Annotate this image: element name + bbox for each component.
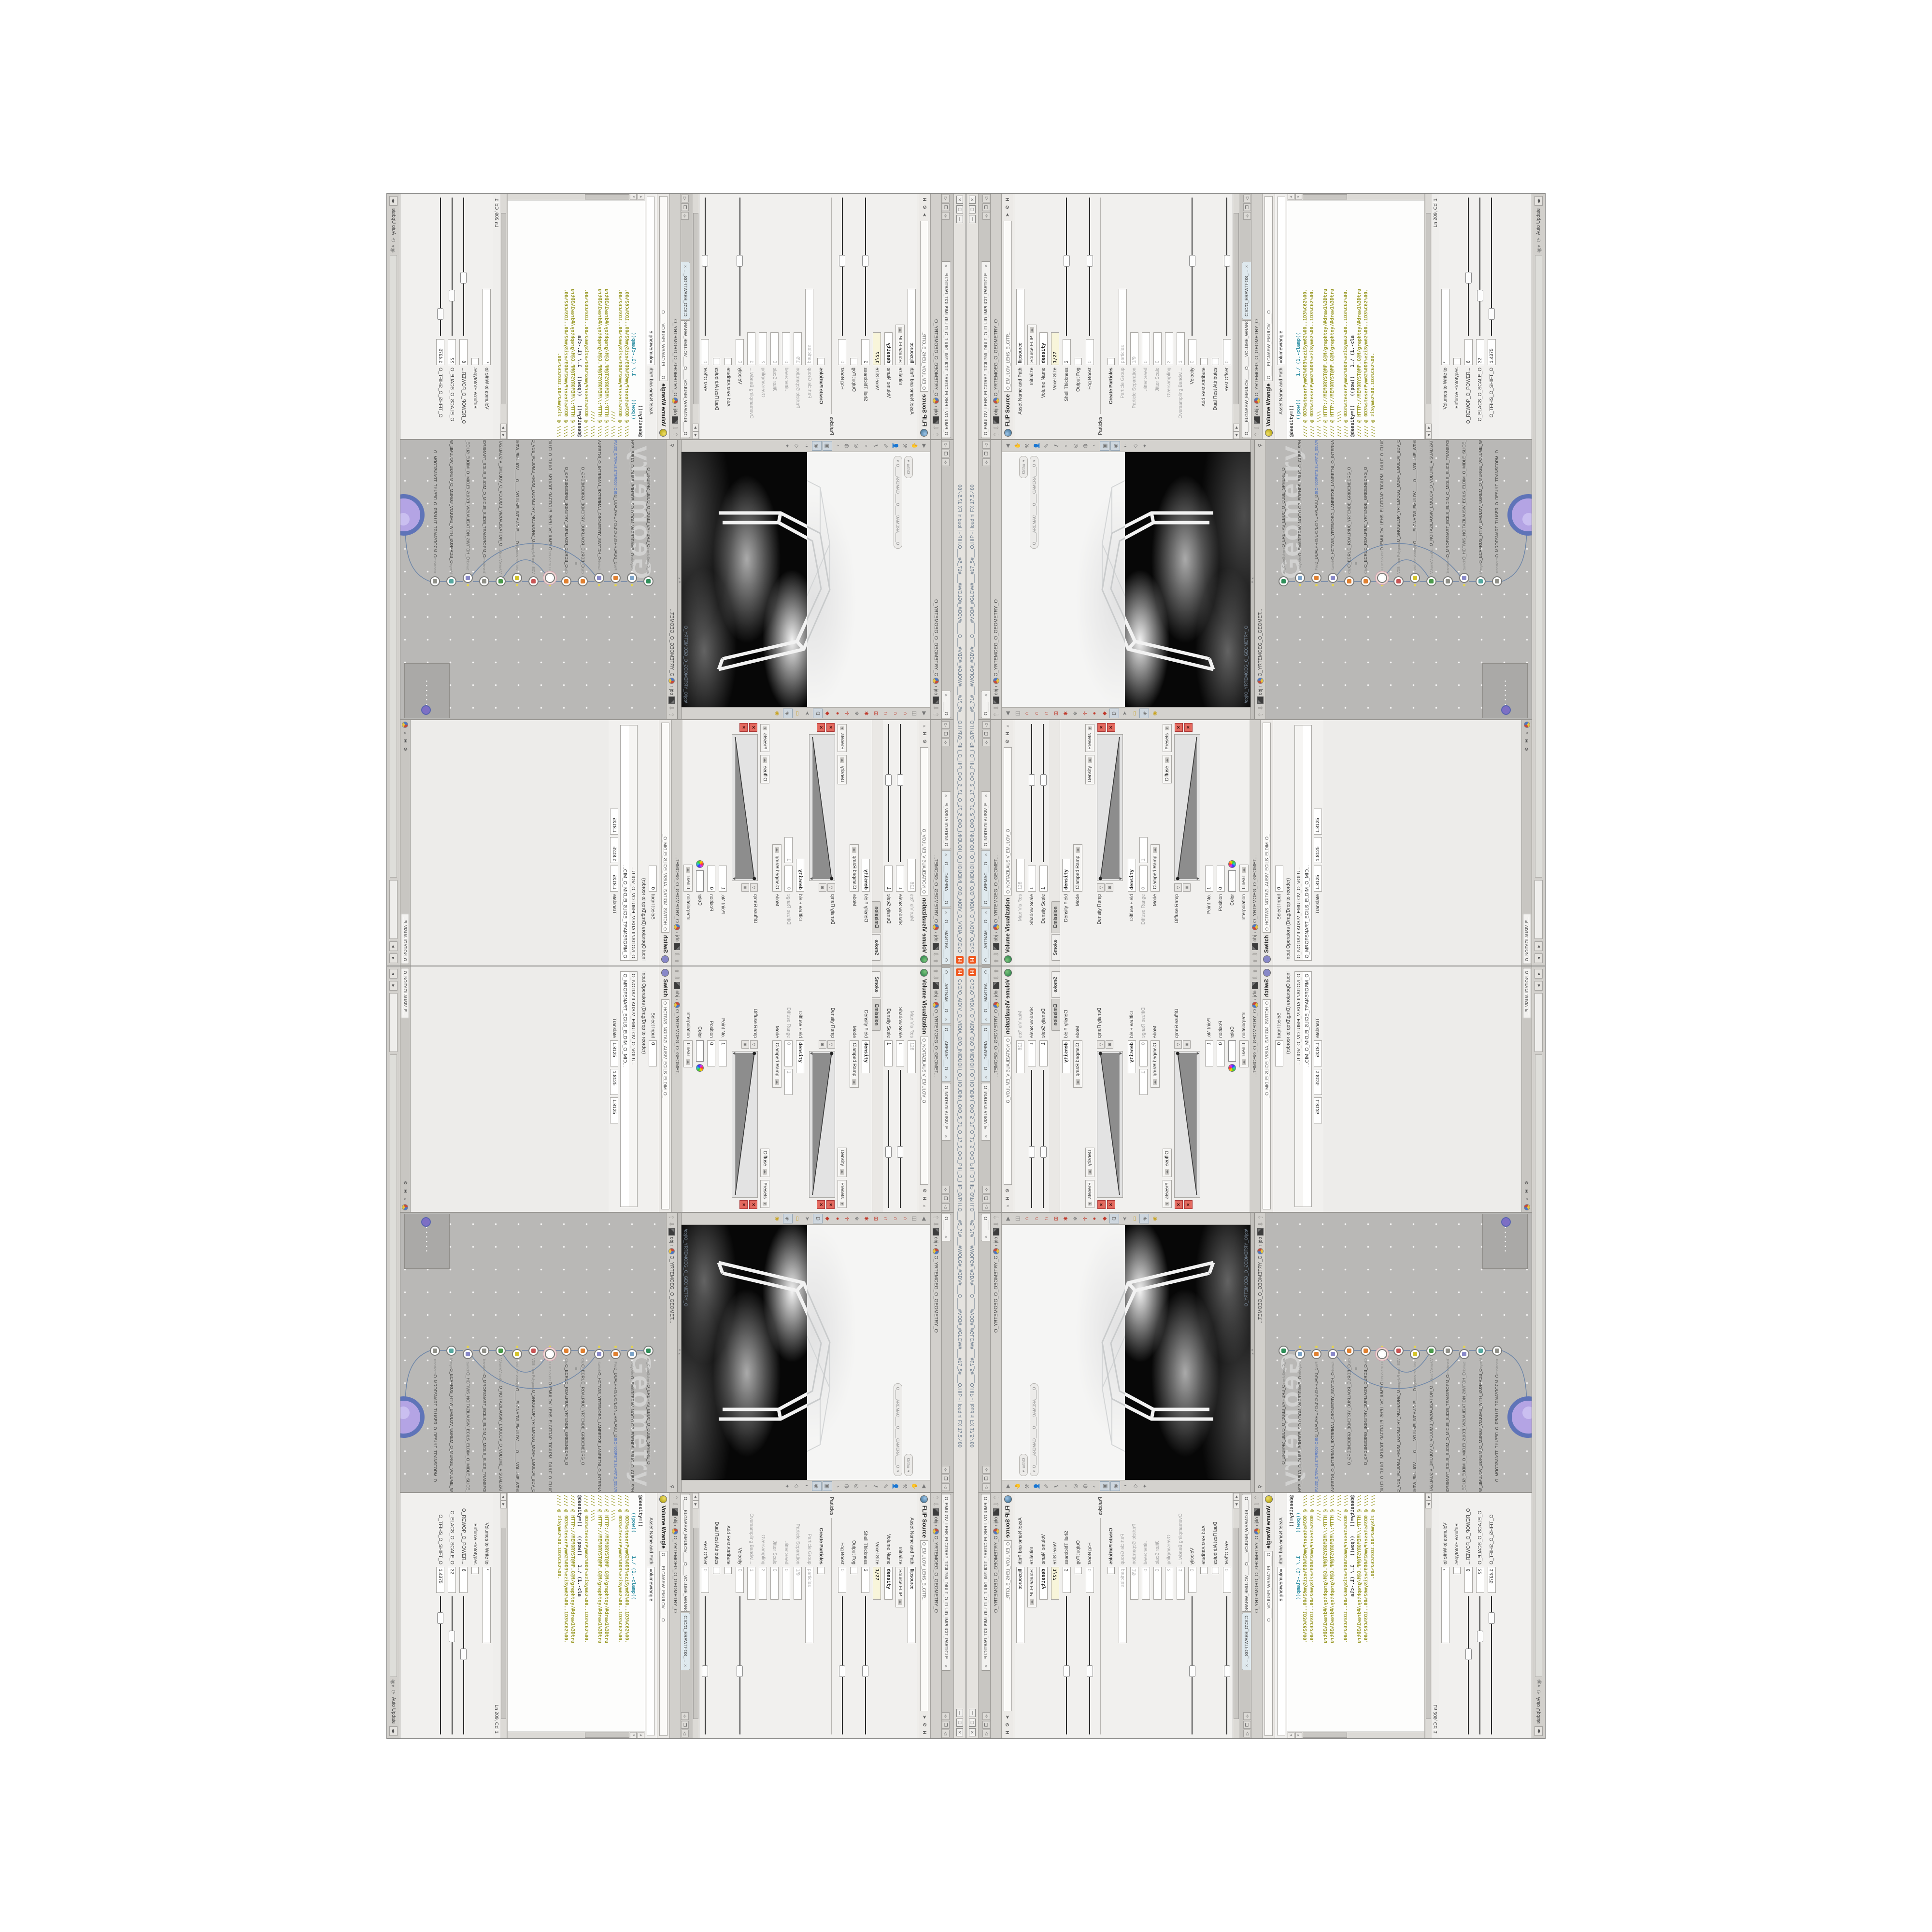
network-node[interactable]: SwitchO_HCTIWS_YRTEMOEG_LANRETXE_LANRETN…	[594, 1346, 604, 1492]
slider-thumb[interactable]	[839, 255, 845, 267]
node-ring[interactable]	[1295, 1349, 1305, 1359]
list-item[interactable]: O_MROFSNART_ECILS_ELDIM_O_MID...	[621, 725, 629, 960]
node-ring[interactable]	[1459, 573, 1469, 583]
ramp-delete-icon[interactable]: ✕	[1175, 1200, 1183, 1209]
snap-grid-icon[interactable]: ∩	[1023, 1214, 1031, 1223]
param-dropdown[interactable]: Clamped Ramp◂▸	[773, 844, 782, 892]
magnifier-icon[interactable]: ⌕	[1005, 723, 1011, 729]
node-ring[interactable]	[643, 1346, 653, 1356]
network-node[interactable]: PolyWireO_EMARFERIW_NOGYLOP_EREHPS_EBUC_…	[627, 1346, 637, 1492]
breadcrumb-context[interactable]: obj	[994, 1517, 999, 1523]
param-field[interactable]: 0	[1223, 339, 1231, 365]
slider-thumb[interactable]	[702, 1665, 708, 1677]
pane-down-arrow-icon[interactable]: ⇩	[674, 952, 681, 957]
character-icon[interactable]: 👤	[891, 441, 900, 450]
folder-tab[interactable]: Emission	[872, 901, 881, 933]
scene-viewport[interactable]: ◀◫∩∩∩⊞✱❄✛●◆D➤▭◈◉	[682, 1213, 930, 1492]
node-ring[interactable]	[1443, 576, 1453, 586]
effects-icon[interactable]: ✦	[783, 441, 792, 450]
network-editor[interactable]: Geometry • • • • • • an_CubeSphereO_EREH…	[400, 1213, 666, 1492]
node-name-label[interactable]: O_ECRUD_ROALPIUC_YRTENDE_GRIDENEDRG_O	[581, 467, 585, 568]
pane-tab[interactable]: O_NOITAZILAUSIV_E...✕	[942, 791, 951, 849]
node-name-label[interactable]: O_ECRUD_ROALPIUC_YRTENDE_GRIDENEDRG_O	[1347, 467, 1351, 568]
camera-lock-icon[interactable]: ◍	[1080, 1482, 1089, 1491]
param-field[interactable]: 1	[1177, 332, 1185, 365]
minimize-button[interactable]: —	[956, 215, 963, 223]
pane-down-arrow-icon[interactable]: ⇩	[669, 705, 675, 710]
pane-up-arrow-icon[interactable]: ⇧	[993, 958, 999, 964]
param-checkbox[interactable]	[1108, 1567, 1115, 1574]
node-ring[interactable]	[1443, 1346, 1453, 1356]
breadcrumb-node[interactable]: O_YRTEMOEG_O_GEOMETRY_O	[1254, 1536, 1260, 1613]
pane-up-arrow-icon[interactable]: ⇧	[1254, 432, 1260, 437]
node-name-label[interactable]: O_ECAFRUS_HTIW_EMULOV_EGREM_O_MERGE_VOLU…	[449, 1368, 454, 1492]
folder-tab[interactable]: Emission	[872, 999, 881, 1031]
param-checkbox[interactable]	[851, 358, 858, 365]
help-h-icon[interactable]: H	[1005, 730, 1011, 737]
node-ring[interactable]	[1377, 573, 1387, 583]
node-ring[interactable]	[1344, 576, 1354, 586]
pane-down-arrow-icon[interactable]: ⇩	[933, 1222, 939, 1227]
node-name-field[interactable]: O____ELGNARW_EMULOV____O	[1264, 1551, 1273, 1736]
param-slider[interactable]	[437, 1595, 444, 1735]
param-field[interactable]: 1.8125	[611, 837, 619, 863]
flip-source-tab[interactable]: O_EMULOV_LEHS_ELCITRAP_TICILPMI_DIULF_O_…	[942, 1494, 951, 1671]
code-hscrollbar[interactable]: ◀ ▶	[1425, 1493, 1432, 1738]
pane-up-arrow-icon[interactable]: ⇧	[1252, 968, 1258, 974]
snap-multi-icon[interactable]: ⊞	[1051, 709, 1060, 718]
node-ring[interactable]	[578, 1346, 588, 1356]
scroll-right-icon[interactable]: ▶	[500, 424, 507, 431]
network-editor[interactable]: Geometry • • • • • • an_CubeSphereO_EREH…	[1266, 1213, 1532, 1492]
network-node[interactable]: an_CubeSphereO_EREHPS_EBUC_O_CUBE_SPHERE…	[1279, 1346, 1289, 1464]
node-ring[interactable]	[1295, 573, 1305, 583]
list-item[interactable]: O_NOITAZILAUSIV_EMULOV_O_VOLU...	[629, 972, 637, 1207]
breadcrumb-context[interactable]: obj	[934, 1237, 939, 1243]
param-field[interactable]: 0	[771, 1567, 779, 1600]
node-name-label[interactable]: O_EMARFERIW_NOGYLOP_EREHPS_EBUC_O_CUBE_S…	[630, 440, 635, 556]
breadcrumb-context[interactable]: obj	[669, 689, 675, 695]
network-box-node-dot[interactable]	[421, 1217, 431, 1227]
ramp-flip-icon[interactable]: ▽	[1174, 1040, 1182, 1049]
select-lasso-icon[interactable]: ◉	[1150, 709, 1159, 718]
ramp-delete-icon[interactable]: ✕	[1175, 723, 1183, 732]
slider-thumb[interactable]	[862, 1665, 868, 1677]
code-line[interactable]: @density=(( ((pow(( 1./ (1.-cla	[1350, 202, 1356, 437]
param-field[interactable]: 1.8125	[1314, 1069, 1322, 1095]
node-ring[interactable]	[1393, 1346, 1404, 1356]
scroll-down-icon[interactable]: ▼	[1295, 194, 1302, 200]
list-item[interactable]: O_MROFSNART_ECILS_ELDIM_O_MID...	[1303, 725, 1311, 960]
param-checkbox[interactable]	[1453, 1567, 1461, 1574]
nav-left-icon[interactable]: ◀	[1534, 953, 1543, 963]
presets-dropdown[interactable]: Presets▾	[1085, 1180, 1094, 1208]
param-field[interactable]: 3	[862, 339, 870, 365]
pane-tab[interactable]: O____ELGNARW_EMULOV____O____VOLUME_WRANG…	[681, 320, 690, 438]
stepper-icon[interactable]: ◂▸	[1242, 867, 1246, 873]
stepper-icon[interactable]: ◂▸	[1030, 327, 1034, 333]
vex-editor[interactable]: @density=(( ((pow(( 1./ (1.-clamp((//// …	[507, 1493, 645, 1738]
ramp-curve-widget[interactable]	[1097, 734, 1123, 881]
minimize-button[interactable]: —	[969, 1709, 976, 1717]
pane-collapse-icon[interactable]: ◁	[942, 195, 950, 202]
param-field[interactable]: 1	[1139, 1069, 1148, 1095]
ramp-curve-widget[interactable]	[732, 1051, 758, 1198]
pane-up-arrow-icon[interactable]: ⇧	[674, 958, 681, 964]
stepper-icon[interactable]: ◂▸	[1076, 1079, 1080, 1085]
pane-split-icon[interactable]: ⊹	[942, 458, 950, 466]
ramp-flip-icon[interactable]: ▽	[827, 1040, 835, 1049]
node-name-label[interactable]: O_ECRUD_ROALPIUC_YRTENDE_GRIDENEDRG_O	[564, 1364, 569, 1465]
slider-thumb[interactable]	[1087, 255, 1093, 267]
node-flag-icon[interactable]	[1299, 1346, 1301, 1348]
key-icon[interactable]: ⚷	[1051, 1482, 1060, 1491]
pane-tab[interactable]: O____ARTNAM___O...✕	[942, 908, 951, 965]
stepper-icon[interactable]: ◂▸	[1165, 1169, 1169, 1175]
param-field[interactable]: 32	[1476, 1567, 1484, 1593]
network-node[interactable]: SwitchO_HCTIWS_NOITAZILAUSIV_ECILS_ELDIM…	[463, 1346, 473, 1492]
shaded-mode-icon[interactable]: ▣	[1100, 1481, 1109, 1491]
tab-close-icon[interactable]: ✕	[984, 694, 988, 697]
scroll-left-icon[interactable]: ◀	[1233, 431, 1239, 439]
node-ring[interactable]	[463, 1349, 473, 1359]
breadcrumb-node[interactable]: O_YRTEMOEG_O_GEOMET...	[994, 855, 999, 923]
nav-left-icon[interactable]: ◀	[1534, 969, 1543, 979]
pane-maximize-icon[interactable]: ❐	[681, 1721, 689, 1729]
pane-divider-handle[interactable]: ▼▲	[1250, 1213, 1255, 1492]
param-field[interactable]: 1	[896, 1040, 905, 1066]
node-name-label[interactable]: O_SNOGILOP_YRTEMOEG_MORF_EMULOV_BDV_O_VD…	[1396, 1390, 1401, 1492]
network-box-node-dot[interactable]	[1501, 705, 1511, 715]
pane-maximize-icon[interactable]: ❐	[942, 1194, 950, 1202]
pin-icon[interactable]: ⚲	[1257, 442, 1264, 449]
camera-icon[interactable]: ◎	[1071, 1482, 1080, 1491]
tab-close-icon[interactable]: ✕	[984, 794, 988, 797]
node-name-field[interactable]: O_HCTIWS_NOITAZILAUSIV_ECILS_ELDIM_O_	[661, 723, 669, 933]
param-slider[interactable]	[1028, 723, 1036, 863]
update-mode-stepper[interactable]: ◀▶	[1534, 1726, 1543, 1736]
breadcrumb-node[interactable]: O_YRTEMOEG_O_GEOMET...	[675, 1009, 680, 1077]
node-ring[interactable]	[1377, 1349, 1387, 1359]
param-field[interactable]: 2	[759, 1567, 767, 1600]
node-ring[interactable]	[1459, 1349, 1469, 1359]
nav-collapse-icon[interactable]: ◀	[1003, 1214, 1012, 1223]
node-name-field[interactable]: O_EMULOV_LEHS_ELCITR...	[920, 1540, 928, 1711]
stepper-icon[interactable]: ◂▸	[686, 1059, 691, 1065]
param-dropdown[interactable]: Clamped Ramp◂▸	[1151, 1040, 1160, 1088]
visibility-icon[interactable]: ◉	[812, 441, 822, 451]
ramp-delete-icon[interactable]: ✕	[749, 723, 757, 732]
construction-plane-icon[interactable]: ❄	[852, 1214, 861, 1223]
move-tool-icon[interactable]: ✛	[843, 709, 852, 718]
snap-point-icon[interactable]: ∩	[891, 709, 900, 718]
scroll-thumb[interactable]	[693, 213, 698, 404]
node-name-label[interactable]: O_HCTIWS_YRTEMOEG_LANRETXE_LANRETNI_O_IN…	[1330, 440, 1335, 560]
breadcrumb-node[interactable]: O_YRTEMOEG_O_GEOMET...	[1252, 855, 1258, 923]
tab-close-icon[interactable]: ✕	[944, 1236, 949, 1239]
gear-icon[interactable]: ⚙	[1005, 1187, 1011, 1194]
scale-tool-icon[interactable]: ◆	[1100, 1214, 1108, 1223]
ramp-add-icon[interactable]: ⊞	[741, 1040, 749, 1049]
param-field[interactable]: 1.8125	[611, 809, 619, 835]
code-line[interactable]: //// @ ziSym62%00.1D3%C62%00.	[1370, 1495, 1377, 1730]
folder-tab[interactable]: Smoke	[872, 971, 881, 998]
tab-close-icon[interactable]: ✕	[944, 911, 949, 914]
network-node[interactable]: ClipO_ECRUD_ROALPIUC_YRTENDE_GRIDENEDRG_…	[578, 1346, 588, 1465]
gear-icon[interactable]: ⚙	[921, 738, 928, 745]
param-slider[interactable]	[701, 1595, 709, 1735]
shaded-mode-icon[interactable]: ▣	[1100, 441, 1109, 451]
network-node[interactable]: VDB from PolygonsO_SNOGILOP_YRTEMOEG_MOR…	[1393, 1346, 1404, 1492]
node-flag-icon[interactable]	[598, 1346, 600, 1348]
scroll-thumb[interactable]	[1426, 1528, 1431, 1719]
param-checkbox[interactable]	[1212, 358, 1219, 365]
node-name-field[interactable]: O_NOITAZILAUSIV_EMULOV_O	[920, 747, 928, 895]
node-ring[interactable]	[496, 576, 506, 586]
param-slider[interactable]	[460, 197, 468, 337]
view-pin-icon[interactable]: ◔	[1090, 1482, 1099, 1491]
network-node[interactable]: VolumeVisualiz...O_NOITAZILAUSIV_EMULOV_…	[1426, 440, 1436, 586]
pointer-icon[interactable]: ➤	[1005, 212, 1011, 218]
gear-icon[interactable]: ⚙	[921, 204, 928, 211]
view-mode-pill[interactable]: Ortho▾	[904, 456, 913, 478]
pane-collapse-icon[interactable]: ◁	[982, 1483, 990, 1491]
snap-edge-icon[interactable]: ∩	[881, 709, 890, 718]
param-field[interactable]: 128	[1016, 1040, 1024, 1073]
code-vscrollbar[interactable]: ▲ ▼	[508, 194, 645, 200]
slider-thumb[interactable]	[897, 775, 903, 786]
network-node[interactable]: FLIP SourceO_EMULOV_LEHS_ELCITRAP_TICILP…	[545, 1346, 555, 1492]
param-field[interactable]: particles	[806, 1567, 814, 1643]
pane-down-arrow-icon[interactable]: ⇩	[1252, 975, 1258, 980]
select-lasso-icon[interactable]: ◉	[773, 709, 782, 718]
param-checkbox[interactable]	[1108, 358, 1115, 365]
code-line[interactable]: @density=((	[1289, 1495, 1295, 1730]
param-field[interactable]: 0	[708, 866, 716, 892]
param-slider[interactable]	[1188, 1595, 1196, 1735]
code-line[interactable]: //// \\\\	[1316, 202, 1322, 437]
construction-plane-icon[interactable]: ❄	[1071, 709, 1080, 718]
camera-pill[interactable]: O____AREMAC____O____CAMERA____O▾	[894, 456, 902, 549]
param-field[interactable]: density	[1128, 1040, 1136, 1073]
move-tool-icon[interactable]: ✛	[1080, 1214, 1089, 1223]
pin-icon[interactable]: ⚲	[1257, 1483, 1264, 1490]
node-name-label[interactable]: O_ECRUD_ROALPIUC_YRTENDE_GRIDENEDRG_O	[581, 1364, 585, 1465]
slider-thumb[interactable]	[460, 272, 467, 284]
param-field[interactable]: 1	[896, 866, 905, 892]
network-node[interactable]: Volume WrangleO____ELGNARW_EMULOV____O__…	[512, 440, 522, 586]
network-editor[interactable]: Geometry • • • • • • an_CubeSphereO_EREH…	[1266, 440, 1532, 719]
nav-collapse-icon[interactable]: ◀	[920, 709, 929, 718]
network-node[interactable]: FLIP SourceO_EMULOV_LEHS_ELCITRAP_TICILP…	[545, 440, 555, 586]
pen-icon[interactable]: ✎	[881, 1482, 890, 1491]
node-ring[interactable]	[643, 576, 653, 586]
pane-tab[interactable]: O____ELGNARW_EMULOV____O____VOLUME_WRANG…	[681, 1494, 690, 1612]
network-node[interactable]: FLIP SourceO_EMULOV_LEHS_ELCITRAP_TICILP…	[1377, 440, 1387, 586]
node-ring[interactable]	[1311, 1349, 1321, 1359]
pen-icon[interactable]: ✎	[1042, 441, 1051, 450]
node-name-label[interactable]: O____ELGNARW_EMULOV____O____VOLUME_WRANG…	[515, 440, 520, 544]
select-cursor-icon[interactable]: ➤	[1120, 1214, 1129, 1223]
network-node[interactable]: VDB from PolygonsO_SNOGILOP_YRTEMOEG_MOR…	[1393, 440, 1404, 586]
node-flag-icon[interactable]	[467, 1346, 469, 1348]
breadcrumb-context[interactable]: obj	[994, 935, 999, 941]
code-line[interactable]: @density=((	[637, 1495, 643, 1730]
param-slider[interactable]	[896, 1069, 904, 1209]
node-ring[interactable]	[430, 1346, 440, 1356]
node-flag-icon[interactable]	[614, 1346, 617, 1348]
scroll-thumb[interactable]	[501, 1528, 506, 1719]
param-field[interactable]: 0	[1275, 866, 1283, 892]
pane-up-arrow-icon[interactable]: ⇧	[993, 432, 999, 437]
vex-editor[interactable]: @density=(( ((pow(( 1./ (1.-clamp((//// …	[1287, 194, 1425, 439]
breadcrumb-node[interactable]: O_YRTEMOEG_O_GEOMETRY_O	[994, 1256, 999, 1333]
pane-down-arrow-icon[interactable]: ⇩	[993, 705, 999, 710]
param-field[interactable]: 1/9	[794, 332, 802, 365]
tab-close-icon[interactable]: ✕	[944, 264, 949, 268]
pane-up-arrow-icon[interactable]: ⇧	[933, 958, 939, 964]
update-mode-label[interactable]: Auto Update	[1536, 1697, 1541, 1724]
breadcrumb-node[interactable]: O_YRTEMOEG_O_GEOMETRY_O	[1254, 319, 1260, 397]
flip-hscrollbar[interactable]: ◀ ▶	[693, 194, 699, 439]
dot-icon[interactable]: ∘	[1061, 1482, 1070, 1491]
breadcrumb-node[interactable]: O_YRTEMOEG_O_GEOMET...	[1258, 609, 1263, 677]
node-name-label[interactable]: O_HCTIWS_NOITAZILAUSIV_ECILS_ELDIM_O_MID…	[1462, 440, 1466, 560]
node-name-label[interactable]: O_EMARFERIW_NOGYLOP_EREHPS_EBUC_O_CUBE_S…	[1297, 440, 1302, 556]
pane-maximize-icon[interactable]: ❐	[1243, 1721, 1251, 1729]
breadcrumb-node[interactable]: O_YRTEMOEG_O_GEOMETRY_O	[673, 319, 678, 397]
breadcrumb-context[interactable]: obj	[1252, 935, 1258, 941]
asset-name-field[interactable]: volumewrangle	[1277, 197, 1285, 365]
network-node[interactable]: MergeO_ECAFRUS_HTIW_EMULOV_EGREM_O_MERGE…	[1476, 1346, 1486, 1492]
nav-right-icon[interactable]: ▶	[1534, 941, 1543, 951]
node-name-field[interactable]: O____ELGNARW_EMULOV____O	[659, 1551, 668, 1736]
param-field[interactable]: 0	[1217, 1040, 1225, 1066]
ramp-target-dropdown[interactable]: Diffuse◂▸	[1163, 755, 1172, 783]
node-flag-icon[interactable]	[1414, 1346, 1416, 1348]
tab-close-icon[interactable]: ✕	[984, 1076, 988, 1079]
code-vscrollbar[interactable]: ▲ ▼	[508, 1732, 645, 1738]
network-node[interactable]: VolumeVisualiz...O_NOITAZILAUSIV_EMULOV_…	[496, 440, 506, 586]
param-field[interactable]: 0	[1142, 332, 1150, 365]
tab-close-icon[interactable]: ✕	[984, 853, 988, 856]
pane-down-arrow-icon[interactable]: ⇩	[933, 952, 939, 957]
param-field[interactable]: 0	[708, 1040, 716, 1066]
node-name-label[interactable]: O_MROFSNART_ECILS_ELDIM_O_MIDLE_SLICE_TR…	[482, 440, 487, 557]
scroll-up-icon[interactable]: ▲	[638, 194, 644, 200]
select-geometry-icon[interactable]: ◈	[783, 709, 793, 718]
param-checkbox[interactable]	[713, 358, 721, 365]
snap-point-icon[interactable]: ∩	[1032, 709, 1041, 718]
breadcrumb-context[interactable]: obj	[675, 991, 680, 997]
breadcrumb-context[interactable]: obj	[994, 409, 999, 415]
camera-pill[interactable]: O____AREMAC____O____CAMERA____O▾	[894, 1383, 902, 1476]
presets-dropdown[interactable]: Presets▾	[1163, 1180, 1172, 1208]
help-h-icon[interactable]: H	[921, 1195, 928, 1202]
node-flag-icon[interactable]	[549, 584, 551, 586]
effects-icon[interactable]: ✦	[1140, 1482, 1149, 1491]
tab-close-icon[interactable]: ✕	[944, 1664, 949, 1668]
network-box[interactable]: • • • • • •	[1482, 663, 1528, 718]
slider-thumb[interactable]	[460, 1648, 467, 1660]
param-field[interactable]: density	[885, 332, 893, 365]
network-node[interactable]: TransformO_MROFSNART_ECILS_ELDIM_O_MIDLE…	[1443, 1346, 1453, 1492]
pane-collapse-icon[interactable]: ◁	[1243, 1730, 1251, 1737]
breadcrumb-context[interactable]: obj	[673, 409, 678, 415]
pane-collapse-icon[interactable]: ◁	[942, 1203, 950, 1211]
network-node[interactable]: VolumeVisualiz...O_NOITAZILAUSIV_EMULOV_…	[1426, 1346, 1436, 1492]
param-field[interactable]: density	[796, 1040, 805, 1073]
breadcrumb-context[interactable]: obj	[934, 991, 939, 997]
node-flag-icon[interactable]	[1414, 584, 1416, 586]
code-line[interactable]: //// \\\\	[1336, 1495, 1343, 1730]
node-flag-icon[interactable]	[1332, 584, 1334, 586]
node-name-label[interactable]: O_MROFSNART_TLUSER_O_RESULT_TRANSFORM_O	[433, 1375, 438, 1482]
code-line[interactable]: @density=(( ((pow(( 1./ (1.-cla	[576, 202, 582, 437]
param-field[interactable]: 0	[838, 1567, 847, 1593]
list-item[interactable]: O_NOITAZILAUSIV_EMULOV_O_VOLU...	[1295, 725, 1303, 960]
pane-up-arrow-icon[interactable]: ⇧	[933, 968, 939, 974]
scroll-thumb[interactable]	[501, 213, 506, 404]
param-slider[interactable]	[1476, 1595, 1484, 1735]
pane-up-arrow-icon[interactable]: ⇧	[933, 1215, 939, 1220]
help-h-icon[interactable]: H	[402, 1188, 409, 1194]
node-ring[interactable]	[561, 576, 571, 586]
param-field[interactable]: 1	[719, 866, 727, 892]
breadcrumb-node[interactable]: O_YRTEMOEG_O_GEOMETRY_O	[934, 1256, 939, 1333]
move-tool-icon[interactable]: ✛	[1080, 709, 1089, 718]
ramp-delete-icon[interactable]: ✕	[1097, 1200, 1106, 1209]
pan-hand-icon[interactable]: ✋	[1013, 1482, 1022, 1491]
param-field[interactable]: 0	[1153, 332, 1162, 365]
scroll-right-icon[interactable]: ▶	[1233, 1501, 1239, 1508]
param-field[interactable]: 0	[736, 1567, 744, 1593]
refresh-icon[interactable]: ⟳	[1535, 238, 1542, 242]
network-node[interactable]: FileD_DUALPR@/E@/E@NURPLAUD_DJBO.NO3PETS…	[1311, 440, 1321, 586]
pane-maximize-icon[interactable]: ❐	[942, 203, 950, 211]
help-h-icon[interactable]: H	[921, 196, 928, 203]
nav-left-icon[interactable]: ◀	[389, 969, 398, 979]
stepper-icon[interactable]: ◂▸	[1088, 1169, 1092, 1175]
param-field[interactable]: 0	[1086, 1567, 1094, 1593]
breadcrumb-context[interactable]: obj	[1258, 1237, 1263, 1243]
input-operators-list[interactable]: O_NOITAZILAUSIV_EMULOV_O_VOLU...O_MROFSN…	[1294, 971, 1312, 1207]
param-field[interactable]: *	[483, 1567, 491, 1643]
gear-icon[interactable]: ⚙	[921, 1187, 928, 1194]
network-node[interactable]: an_CubeSphereO_EREHPS_EBUC_O_CUBE_SPHERE…	[1279, 468, 1289, 586]
param-field[interactable]: 32	[1476, 339, 1484, 365]
network-node[interactable]: VolumeVisualiz...O_NOITAZILAUSIV_EMULOV_…	[496, 1346, 506, 1492]
breadcrumb-context[interactable]: obj	[934, 689, 939, 695]
param-dropdown[interactable]: Clamped Ramp◂▸	[1073, 1040, 1082, 1088]
dimension-toggle-icon[interactable]: D	[1109, 709, 1119, 718]
ramp-delete-icon[interactable]: ✕	[739, 1200, 748, 1209]
pane-up-arrow-icon[interactable]: ⇧	[1257, 1215, 1264, 1220]
pane-up-arrow-icon[interactable]: ⇧	[1254, 1495, 1260, 1500]
param-field[interactable]: 1/27	[1051, 1567, 1059, 1600]
param-field[interactable]: 1	[748, 1567, 756, 1600]
param-field[interactable]: 2	[1165, 332, 1173, 365]
ramp-target-dropdown[interactable]: Density◂▸	[1085, 1148, 1094, 1177]
network-node[interactable]: SwitchO_HCTIWS_NOITAZILAUSIV_ECILS_ELDIM…	[463, 440, 473, 586]
node-name-label[interactable]: O____ELGNARW_EMULOV____O____VOLUME_WRANG…	[1412, 1388, 1417, 1492]
node-name-label[interactable]: O_EREHPS_EBUC_O_CUBE_SPHERE_O	[646, 468, 651, 547]
param-field[interactable]: 128	[908, 859, 916, 892]
timeline-track[interactable]	[1535, 255, 1542, 878]
node-name-label[interactable]: O_HCTIWS_YRTEMOEG_LANRETXE_LANRETNI_O_IN…	[1330, 1372, 1335, 1492]
wireframe-mode-icon[interactable]: ◇	[793, 1482, 801, 1491]
node-name-label[interactable]: O_MROFSNART_ECILS_ELDIM_O_MIDLE_SLICE_TR…	[1445, 440, 1450, 557]
